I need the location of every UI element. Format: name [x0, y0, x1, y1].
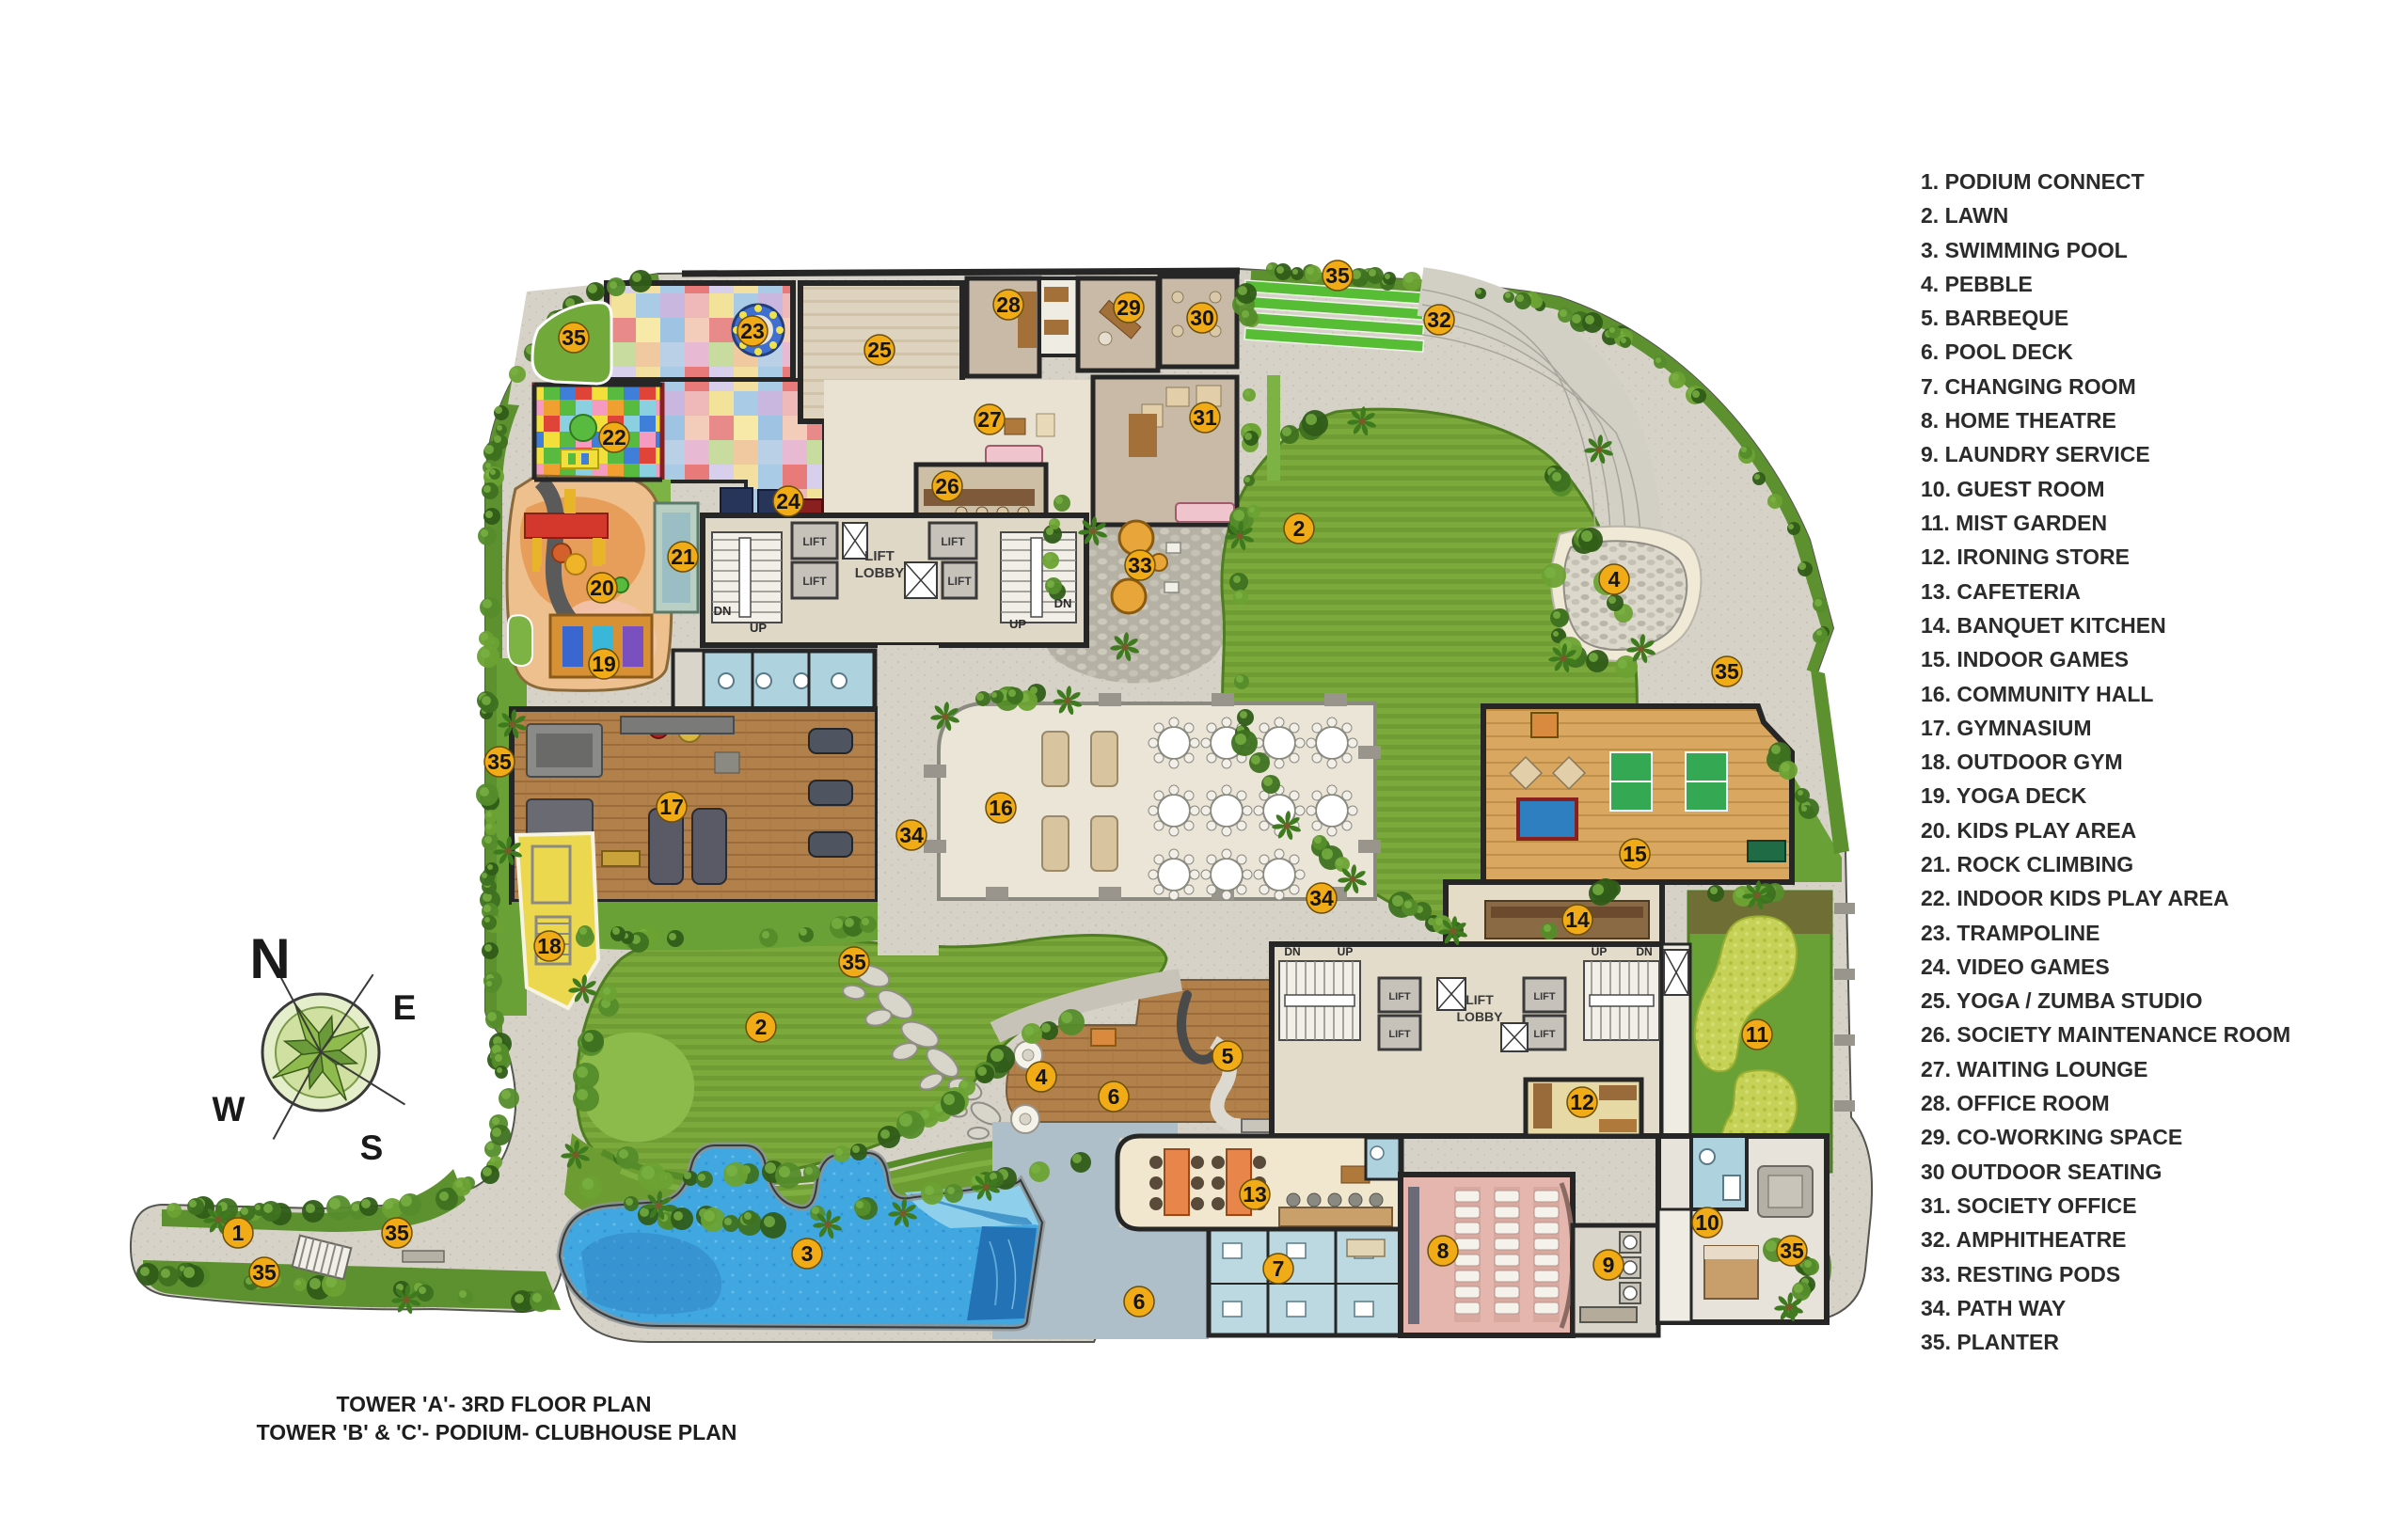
svg-text:LIFT: LIFT	[864, 548, 895, 564]
svg-text:27: 27	[977, 407, 1002, 432]
svg-text:1. PODIUM CONNECT: 1. PODIUM CONNECT	[1921, 169, 2145, 194]
svg-text:11: 11	[1746, 1022, 1769, 1047]
svg-text:31. SOCIETY OFFICE: 31. SOCIETY OFFICE	[1921, 1193, 2137, 1218]
svg-text:23: 23	[740, 319, 765, 343]
svg-text:32: 32	[1427, 308, 1451, 332]
svg-text:LIFT: LIFT	[941, 535, 965, 548]
svg-text:35: 35	[1325, 263, 1350, 288]
svg-text:LIFT: LIFT	[802, 535, 827, 548]
svg-text:1: 1	[232, 1221, 245, 1245]
svg-text:DN: DN	[1284, 945, 1300, 958]
svg-text:DN: DN	[714, 604, 732, 618]
svg-text:32. AMPHITHEATRE: 32. AMPHITHEATRE	[1921, 1227, 2127, 1252]
svg-text:35: 35	[842, 950, 866, 974]
svg-text:35: 35	[562, 325, 586, 350]
svg-text:23. TRAMPOLINE: 23. TRAMPOLINE	[1921, 921, 2099, 945]
svg-text:11. MIST GARDEN: 11. MIST GARDEN	[1921, 511, 2107, 535]
svg-text:W: W	[213, 1090, 246, 1128]
svg-text:28. OFFICE ROOM: 28. OFFICE ROOM	[1921, 1091, 2110, 1115]
svg-text:12: 12	[1570, 1090, 1594, 1114]
svg-text:19: 19	[592, 652, 616, 676]
svg-text:12. IRONING STORE: 12. IRONING STORE	[1921, 544, 2130, 569]
svg-text:UP: UP	[1009, 617, 1026, 631]
svg-text:E: E	[393, 988, 417, 1027]
svg-text:LIFT: LIFT	[1533, 991, 1555, 1002]
svg-text:N: N	[249, 927, 290, 990]
svg-text:35: 35	[1780, 1239, 1804, 1263]
svg-text:UP: UP	[750, 621, 767, 635]
svg-text:22. INDOOR KIDS PLAY AREA: 22. INDOOR KIDS PLAY AREA	[1921, 886, 2229, 910]
svg-text:LIFT: LIFT	[1533, 1029, 1555, 1040]
svg-text:6. POOL DECK: 6. POOL DECK	[1921, 339, 2073, 364]
svg-text:20: 20	[590, 576, 614, 600]
svg-text:LIFT: LIFT	[1465, 992, 1494, 1007]
svg-text:13. CAFETERIA: 13. CAFETERIA	[1921, 579, 2081, 604]
svg-text:UP: UP	[1338, 945, 1354, 958]
svg-text:27. WAITING LOUNGE: 27. WAITING LOUNGE	[1921, 1057, 2148, 1081]
svg-text:16: 16	[989, 796, 1013, 820]
svg-text:24. VIDEO GAMES: 24. VIDEO GAMES	[1921, 955, 2110, 979]
svg-text:30 OUTDOOR SEATING: 30 OUTDOOR SEATING	[1921, 1160, 2162, 1184]
svg-text:2: 2	[1293, 516, 1306, 541]
svg-text:5: 5	[1222, 1044, 1234, 1068]
svg-text:15. INDOOR GAMES: 15. INDOOR GAMES	[1921, 647, 2129, 671]
svg-text:TOWER 'B' & 'C'- PODIUM- CLUBH: TOWER 'B' & 'C'- PODIUM- CLUBHOUSE PLAN	[257, 1420, 737, 1444]
svg-text:20. KIDS PLAY AREA: 20. KIDS PLAY AREA	[1921, 818, 2136, 843]
svg-text:UP: UP	[1592, 945, 1608, 958]
svg-text:LOBBY: LOBBY	[1457, 1009, 1504, 1024]
svg-text:35: 35	[487, 750, 512, 774]
svg-text:2. LAWN: 2. LAWN	[1921, 203, 2008, 228]
svg-text:8. HOME THEATRE: 8. HOME THEATRE	[1921, 408, 2116, 433]
svg-text:6: 6	[1133, 1289, 1146, 1314]
svg-text:8: 8	[1437, 1239, 1450, 1263]
svg-text:28: 28	[996, 292, 1021, 317]
svg-text:22: 22	[602, 425, 626, 450]
svg-text:3: 3	[801, 1241, 814, 1266]
svg-text:DN: DN	[1636, 945, 1652, 958]
svg-text:S: S	[360, 1128, 384, 1167]
svg-text:18. OUTDOOR GYM: 18. OUTDOOR GYM	[1921, 750, 2123, 774]
svg-text:34: 34	[1309, 886, 1334, 910]
svg-text:33: 33	[1128, 553, 1152, 577]
svg-text:4: 4	[1608, 567, 1621, 592]
svg-text:18: 18	[537, 934, 562, 958]
svg-text:33. RESTING PODS: 33. RESTING PODS	[1921, 1262, 2120, 1286]
svg-text:25: 25	[867, 338, 892, 362]
svg-text:9. LAUNDRY SERVICE: 9. LAUNDRY SERVICE	[1921, 442, 2150, 466]
svg-text:14. BANQUET KITCHEN: 14. BANQUET KITCHEN	[1921, 613, 2166, 638]
svg-text:30: 30	[1190, 306, 1214, 330]
svg-text:34: 34	[899, 823, 924, 847]
svg-text:3. SWIMMING POOL: 3. SWIMMING POOL	[1921, 238, 2128, 262]
svg-text:35. PLANTER: 35. PLANTER	[1921, 1330, 2059, 1354]
svg-text:LIFT: LIFT	[1388, 1029, 1410, 1040]
svg-text:29: 29	[1117, 295, 1141, 320]
svg-text:6: 6	[1108, 1084, 1120, 1109]
svg-text:10: 10	[1695, 1210, 1719, 1235]
svg-text:7. CHANGING ROOM: 7. CHANGING ROOM	[1921, 374, 2136, 399]
svg-text:LOBBY: LOBBY	[855, 565, 905, 581]
svg-text:35: 35	[385, 1221, 409, 1245]
svg-text:19. YOGA DECK: 19. YOGA DECK	[1921, 783, 2087, 808]
svg-text:17. GYMNASIUM: 17. GYMNASIUM	[1921, 716, 2091, 740]
svg-text:13: 13	[1243, 1182, 1267, 1207]
svg-text:9: 9	[1603, 1253, 1615, 1277]
svg-text:LIFT: LIFT	[947, 575, 972, 588]
svg-text:21: 21	[671, 544, 695, 569]
svg-text:31: 31	[1193, 405, 1217, 430]
svg-text:21. ROCK CLIMBING: 21. ROCK CLIMBING	[1921, 852, 2133, 876]
svg-text:4. PEBBLE: 4. PEBBLE	[1921, 272, 2033, 296]
svg-text:2: 2	[755, 1015, 768, 1039]
svg-text:TOWER 'A'- 3RD FLOOR PLAN: TOWER 'A'- 3RD FLOOR PLAN	[336, 1392, 651, 1416]
svg-text:LIFT: LIFT	[1388, 991, 1410, 1002]
svg-text:24: 24	[776, 489, 800, 513]
svg-text:34. PATH WAY: 34. PATH WAY	[1921, 1296, 2066, 1320]
svg-text:16. COMMUNITY HALL: 16. COMMUNITY HALL	[1921, 682, 2153, 706]
svg-text:26. SOCIETY MAINTENANCE ROOM: 26. SOCIETY MAINTENANCE ROOM	[1921, 1022, 2290, 1047]
svg-text:7: 7	[1273, 1256, 1285, 1281]
svg-text:17: 17	[659, 795, 684, 819]
svg-text:35: 35	[1715, 659, 1739, 684]
svg-text:4: 4	[1036, 1065, 1048, 1089]
svg-text:14: 14	[1565, 907, 1590, 932]
svg-text:25. YOGA / ZUMBA STUDIO: 25. YOGA / ZUMBA STUDIO	[1921, 988, 2202, 1013]
svg-text:29. CO-WORKING SPACE: 29. CO-WORKING SPACE	[1921, 1125, 2182, 1149]
svg-text:10. GUEST ROOM: 10. GUEST ROOM	[1921, 477, 2105, 501]
svg-text:35: 35	[252, 1260, 277, 1285]
svg-text:LIFT: LIFT	[802, 575, 827, 588]
svg-text:26: 26	[935, 474, 959, 498]
svg-text:15: 15	[1623, 842, 1647, 866]
svg-text:5. BARBEQUE: 5. BARBEQUE	[1921, 306, 2068, 330]
